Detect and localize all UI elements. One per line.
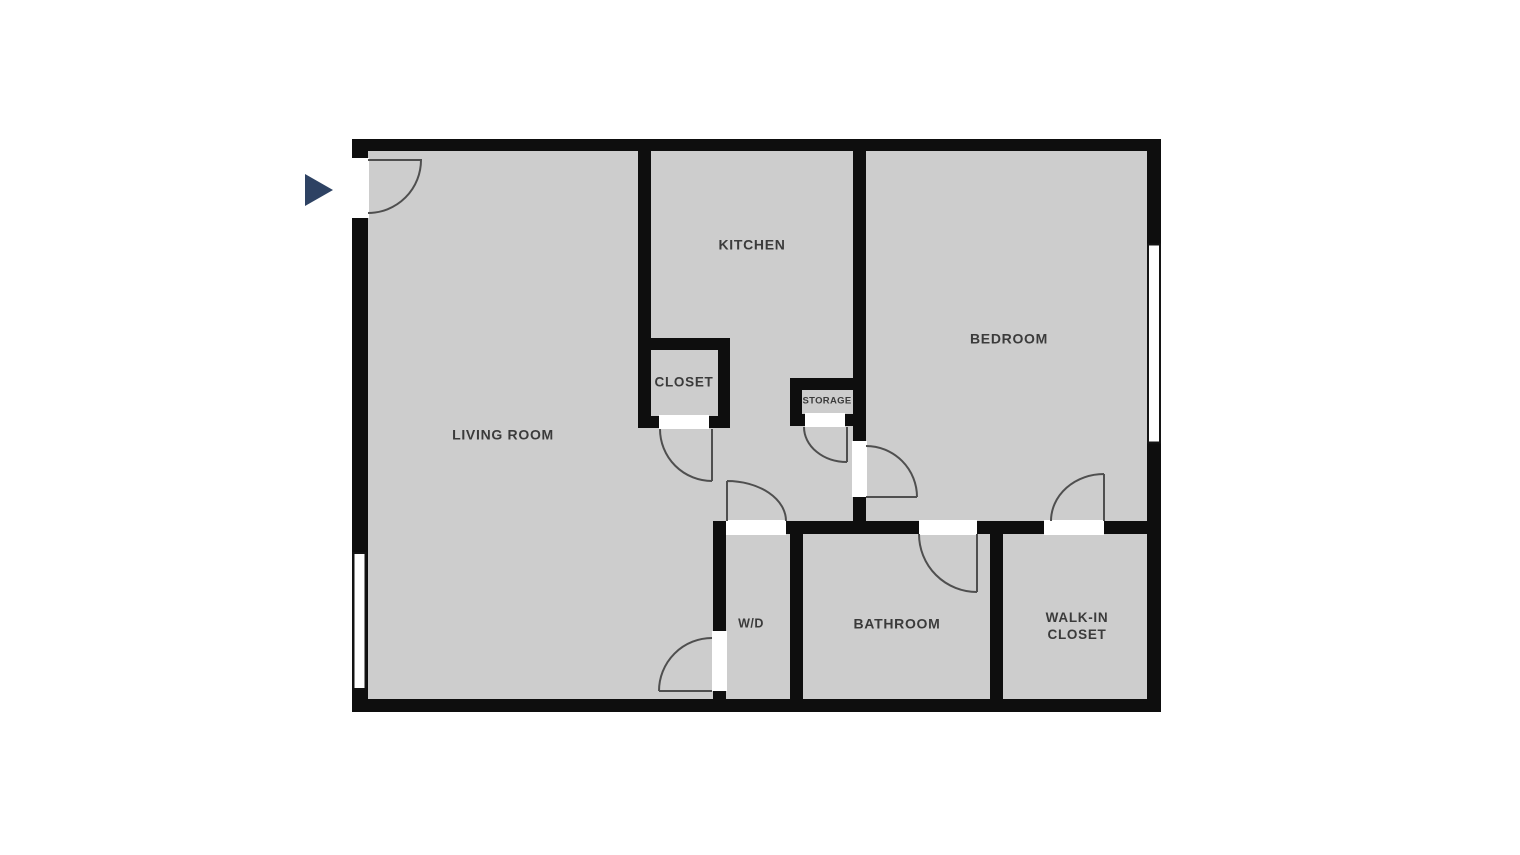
opening-storage-door [805, 413, 845, 427]
opening-walkin-door [1044, 520, 1104, 535]
room-label-walk-in-closet-line1: WALK-IN [1046, 609, 1109, 626]
floorplan-canvas: LIVING ROOM KITCHEN CLOSET STORAGE BEDRO… [0, 0, 1520, 855]
opening-bedroom-door [852, 441, 867, 497]
room-label-wd: W/D [738, 616, 764, 633]
room-label-bathroom: BATHROOM [854, 616, 941, 633]
wall-closet-bottom-left [638, 416, 660, 428]
opening-hall-door [726, 520, 786, 535]
wall-wd-left-lower [713, 691, 726, 712]
wall-south-seg-c [977, 521, 1044, 534]
wall-closet-right [718, 338, 730, 428]
room-label-living-room: LIVING ROOM [452, 427, 554, 444]
entry-arrow-icon [305, 174, 333, 206]
room-label-closet: CLOSET [655, 374, 714, 391]
window-bedroom [1148, 245, 1160, 443]
room-label-walk-in-closet-line2: CLOSET [1046, 626, 1109, 643]
wall-closet-top [638, 338, 730, 350]
wall-wd-left-upper [713, 521, 726, 631]
room-label-walk-in-closet: WALK-IN CLOSET [1046, 609, 1109, 643]
wall-outer-top [352, 139, 1161, 151]
wall-storage-bottom-right [844, 414, 853, 426]
window-living-room [354, 553, 366, 689]
wall-bathroom-left [790, 521, 803, 699]
opening-entry-door [351, 158, 369, 218]
wall-outer-bottom [352, 699, 1161, 712]
room-label-kitchen: KITCHEN [718, 237, 785, 254]
opening-bathroom-door [919, 520, 977, 535]
wall-closet-bottom-right [708, 416, 730, 428]
wall-kitchen-bedroom-divider-upper [853, 151, 866, 441]
wall-storage-bottom-left [790, 414, 806, 426]
opening-closet-door [659, 415, 709, 429]
opening-wd-door [712, 631, 727, 691]
wall-south-seg-b [786, 521, 919, 534]
wall-living-kitchen-divider [638, 151, 651, 428]
room-label-storage: STORAGE [803, 393, 852, 410]
wall-bathroom-right [990, 521, 1003, 699]
room-label-bedroom: BEDROOM [970, 331, 1048, 348]
wall-south-seg-d [1104, 521, 1147, 534]
floorplan-drawing [0, 0, 1520, 855]
